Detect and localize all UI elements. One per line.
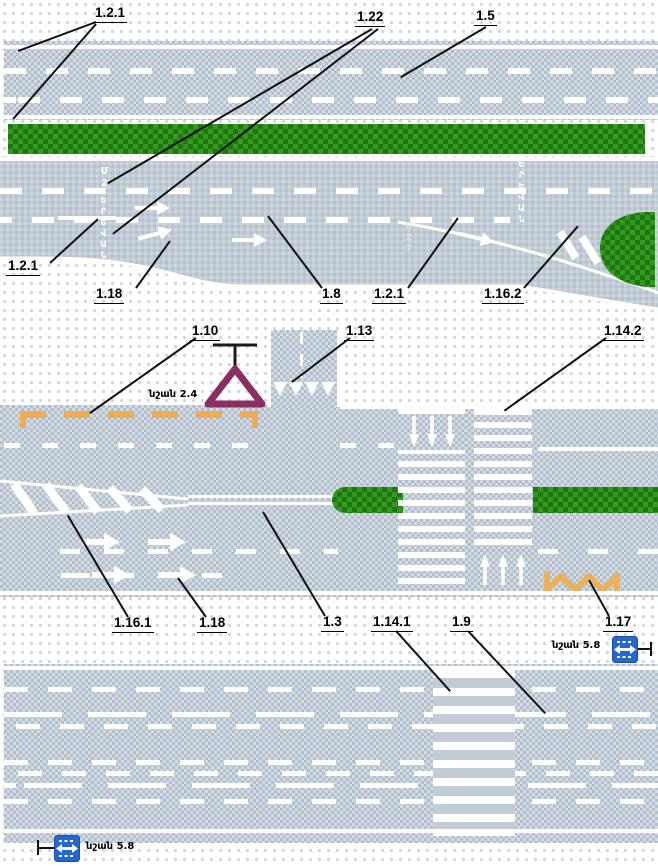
double-solid-line-1.3 [188, 495, 333, 498]
island-stripe [14, 484, 34, 513]
callout-1.16.1[interactable]: 1.16.1 [112, 616, 154, 633]
median-green-right [533, 487, 658, 513]
leader-line [89, 337, 196, 414]
island-edge [0, 481, 188, 499]
lane-line-solid-1.1 [538, 447, 658, 451]
reversible-traffic-sign-icon [54, 835, 80, 862]
island-stripe [46, 485, 66, 512]
median-green-left [332, 487, 403, 513]
crossing-arrows-down [404, 415, 460, 449]
reversible-lane-line-1.9 [4, 771, 658, 776]
lane-line-1.5 [4, 97, 658, 103]
median-green-strip [8, 124, 645, 154]
reversible-lane-line-1.9 [4, 687, 658, 692]
crossing-arrows-up [476, 551, 530, 587]
callout-1.14.1[interactable]: 1.14.1 [371, 615, 413, 632]
callout-1.8[interactable]: 1.8 [320, 287, 343, 304]
sign-pole [37, 840, 39, 855]
give-way-sign-symbol [203, 341, 267, 409]
no-stopping-line-hook [252, 411, 258, 428]
road-text-city-1.22: ԵՐԵՎԱՆ [99, 196, 108, 258]
diagram-canvas: Մ2 ԵՐԵՎԱՆ ԵՐԵՎԱՆ Մ27 [0, 0, 658, 866]
reversible-traffic-sign-icon [612, 636, 638, 663]
sign-label-5.8-right: նշան 5.8 [552, 640, 600, 651]
edge-line-1.2.1 [4, 115, 658, 119]
give-way-teeth-1.13 [273, 382, 287, 396]
lane-line-dashed [340, 443, 398, 448]
sign-pole [650, 642, 652, 656]
side-road-edge-line [268, 330, 271, 407]
edge-line-bottom [0, 591, 658, 595]
callout-1.2.1-top[interactable]: 1.2.1 [93, 6, 127, 23]
callout-1.9[interactable]: 1.9 [450, 615, 473, 632]
give-way-teeth-1.13 [321, 382, 335, 396]
no-stopping-line-1.10 [20, 411, 258, 418]
reversible-lane-line-1.9 [4, 760, 658, 765]
sign-label-5.8-bottom: նշան 5.8 [86, 841, 134, 852]
edge-line-top [4, 666, 658, 670]
road-text-route-number-1.22: Մ2 [99, 166, 109, 194]
callout-1.16.2[interactable]: 1.16.2 [482, 287, 524, 304]
callout-1.5[interactable]: 1.5 [474, 9, 497, 26]
double-solid-line-1.3 [188, 502, 333, 505]
callout-1.2.1-left[interactable]: 1.2.1 [6, 259, 40, 276]
lane-line-1.5 [4, 68, 658, 74]
zebra-crossing-1.14.1 [433, 670, 515, 836]
lane-line-dashed [4, 443, 266, 448]
reversible-lane-line-1.9 [4, 724, 658, 729]
reversible-lane-line-1.9 [4, 799, 658, 804]
give-way-teeth-1.13 [305, 382, 319, 396]
sign-pole [37, 847, 54, 849]
callout-1.18-bottom[interactable]: 1.18 [197, 616, 227, 633]
callout-1.22[interactable]: 1.22 [355, 10, 385, 27]
leader-line [504, 337, 607, 411]
side-road-edge-line [337, 330, 340, 407]
callout-1.10[interactable]: 1.10 [190, 324, 220, 341]
sign-label-2.4: նշան 2.4 [149, 389, 197, 400]
reversible-lane-line-1.9 [4, 712, 658, 717]
edge-line-1.2.1 [4, 45, 658, 49]
reversible-lane-line-1.9 [4, 783, 658, 788]
road-text-route-number-1.22: Մ27 [404, 222, 413, 262]
callout-1.17[interactable]: 1.17 [603, 615, 633, 632]
callout-1.3[interactable]: 1.3 [321, 615, 344, 632]
edge-line-bottom [4, 829, 658, 833]
no-stopping-line-hook [20, 411, 26, 428]
callout-1.2.1-mid[interactable]: 1.2.1 [372, 287, 406, 304]
lane-line-dashed [538, 549, 658, 554]
callout-1.13[interactable]: 1.13 [344, 324, 374, 341]
callout-1.14.2[interactable]: 1.14.2 [602, 324, 644, 341]
callout-1.18-top[interactable]: 1.18 [94, 287, 124, 304]
give-way-teeth-1.13 [289, 382, 303, 396]
road-text-city-1.22: ԵՐԵՎԱՆ [517, 160, 526, 216]
